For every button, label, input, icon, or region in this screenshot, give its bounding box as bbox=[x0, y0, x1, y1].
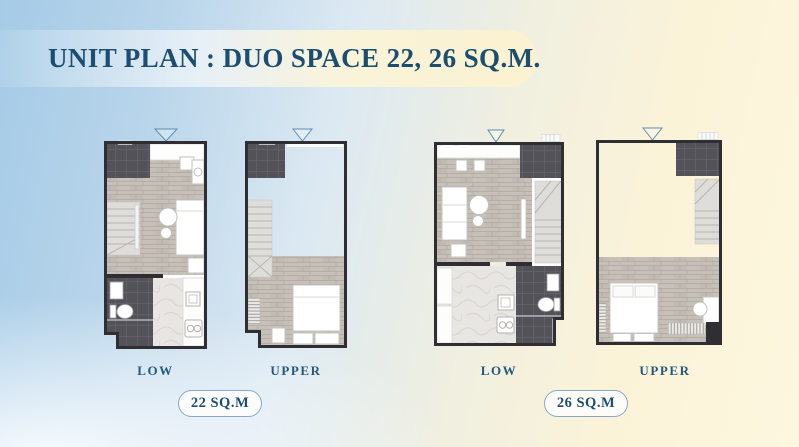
door-swing-icon bbox=[488, 130, 504, 142]
label-22-upper: UPPER bbox=[245, 363, 347, 379]
partition-wall bbox=[437, 262, 532, 266]
unit-size-badge-22: 22 SQ.M bbox=[178, 390, 262, 417]
round-table bbox=[470, 196, 489, 215]
entry-hall bbox=[150, 144, 204, 160]
stool bbox=[161, 228, 172, 239]
ac-ledge bbox=[542, 135, 560, 142]
balcony-area bbox=[248, 144, 285, 178]
page-title: UNIT PLAN : DUO SPACE 22, 26 SQ.M. bbox=[48, 30, 541, 87]
stairs bbox=[248, 200, 272, 277]
door-swing-icon bbox=[293, 129, 312, 141]
sink-icon bbox=[498, 295, 514, 310]
wall-column bbox=[706, 322, 720, 343]
wardrobe bbox=[315, 333, 339, 344]
drawer bbox=[613, 334, 631, 342]
toilet-tank bbox=[554, 298, 560, 311]
wardrobe bbox=[293, 333, 313, 344]
sofa-bed bbox=[176, 200, 204, 255]
pillow bbox=[635, 286, 655, 297]
stairs bbox=[107, 202, 140, 255]
side-table bbox=[188, 258, 204, 273]
partition-wall bbox=[107, 274, 163, 278]
floorplan-26-low bbox=[434, 128, 564, 346]
drawer bbox=[634, 334, 654, 342]
stairs bbox=[695, 179, 720, 244]
kitchen-top-counter bbox=[437, 145, 520, 158]
stool bbox=[456, 160, 467, 171]
round-table bbox=[159, 208, 177, 226]
door-swing-icon bbox=[643, 128, 662, 140]
balcony-area bbox=[107, 144, 150, 178]
slide: UNIT PLAN : DUO SPACE 22, 26 SQ.M. bbox=[0, 0, 799, 447]
side-table bbox=[272, 328, 285, 343]
door-gap bbox=[490, 262, 506, 266]
stool bbox=[474, 160, 485, 171]
pillow bbox=[613, 286, 633, 297]
stairs bbox=[535, 181, 561, 263]
kitchen-counter bbox=[437, 268, 452, 304]
label-26-low: LOW bbox=[434, 363, 564, 379]
shelf bbox=[248, 298, 260, 325]
shelf bbox=[599, 303, 606, 333]
sink-icon bbox=[186, 292, 200, 306]
balcony-area bbox=[676, 143, 720, 176]
toilet-icon bbox=[117, 305, 133, 319]
bed bbox=[293, 285, 340, 331]
toilet-icon bbox=[538, 298, 554, 312]
floorplan-26-upper bbox=[596, 126, 722, 345]
chair bbox=[693, 302, 707, 316]
stool bbox=[473, 216, 484, 227]
door-swing-icon bbox=[155, 129, 177, 141]
basin-icon bbox=[547, 274, 559, 291]
kitchen-floor bbox=[153, 278, 183, 346]
rug bbox=[668, 323, 705, 334]
balcony-area bbox=[520, 145, 561, 178]
kitchen-counter bbox=[437, 306, 452, 343]
side-table bbox=[451, 244, 466, 257]
floorplan-22-low bbox=[104, 127, 207, 349]
label-22-low: LOW bbox=[104, 363, 207, 379]
ac-ledge bbox=[698, 133, 718, 140]
label-26-upper: UPPER bbox=[602, 363, 728, 379]
unit-size-badge-26: 26 SQ.M bbox=[544, 390, 628, 417]
tv-console bbox=[521, 199, 526, 239]
basin-icon bbox=[110, 282, 123, 299]
sofa bbox=[442, 187, 467, 240]
toilet-tank bbox=[110, 305, 116, 318]
floorplan-22-upper bbox=[245, 127, 347, 348]
